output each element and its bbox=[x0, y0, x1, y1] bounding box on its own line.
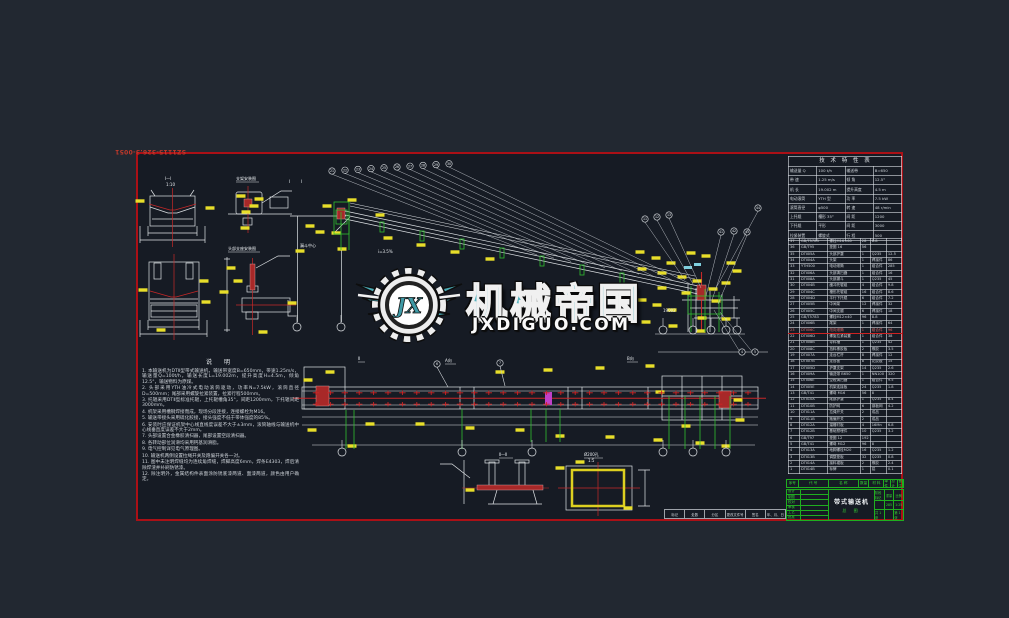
revision-cell: 更改文件号 bbox=[726, 510, 746, 518]
note-line: 4. 机架采用槽钢焊接而成，现场分段连接，连接螺栓为M16。 bbox=[142, 410, 299, 415]
bom-header-row: 序号代 号名 称数量材 料单件总计备注 bbox=[786, 479, 904, 488]
tech-row: 机 长19.002 m提升高度4.5 m bbox=[789, 185, 902, 194]
note-line: 11. 图中未注明焊缝均为连续角焊缝，焊脚高度6mm，焊条E4303，焊后清除焊… bbox=[142, 460, 299, 471]
note-line: 9. 电气控制详见电气原理图。 bbox=[142, 447, 299, 452]
signature-row: 批准 bbox=[787, 516, 828, 520]
tech-row: 电动滚筒YTH 型功 率7.5 kW bbox=[789, 194, 902, 203]
bom-row: 1DTⅡ14B标牌1铝0.1 bbox=[789, 467, 902, 473]
title-info-row: 共 1 张第 1 张 bbox=[875, 510, 903, 520]
note-line: 3. 托辊采用DTⅡ型标准托辊，上托辊槽角35°，间距1200mm，下托辊间距3… bbox=[142, 398, 299, 409]
bom-header-cell: 材 料 bbox=[869, 480, 884, 487]
bom-header-cell: 序号 bbox=[787, 480, 799, 487]
tech-row: 下托辊平形间 距3000 bbox=[789, 222, 902, 231]
cad-canvas: 21222324252627282930111213414243444567Ⅰ—… bbox=[0, 0, 1009, 618]
notes-lines: 1. 本输送机为DTⅡ型带式输送机，输送带宽度B=650mm，带速1.25m/s… bbox=[142, 369, 299, 483]
title-info-row: 阶段标记重量比例 bbox=[875, 490, 903, 501]
title-block-center: 带式输送机 总 图 bbox=[829, 490, 875, 520]
tech-row: 输送量 Q100 t/h输送带B=650 bbox=[789, 167, 902, 176]
note-line: 2. 头部采用YTH油冷式电动滚筒驱动，功率N=7.5kW，滚筒直径D=500m… bbox=[142, 386, 299, 397]
parts-list-table: 37GB/T5783螺栓M16×60288.836GB/T95垫圈 165635… bbox=[788, 238, 902, 474]
bom-header-cell: 备注 bbox=[898, 480, 903, 487]
revision-cell: 分区 bbox=[705, 510, 725, 518]
drawing-number: SZ1115-326.3-0051 bbox=[130, 148, 186, 155]
title-info-row: 2851:25 bbox=[875, 501, 903, 510]
tech-row: 带 速1.25 m/s倾 角12.5° bbox=[789, 176, 902, 185]
title-block-signatures: 设计制图校对审核工艺批准 bbox=[787, 490, 829, 520]
notes-title: 说 明 bbox=[142, 357, 299, 366]
revision-strip: 标记处数分区更改文件号签名年、月、日 bbox=[664, 509, 786, 519]
bom-header-cell: 总计 bbox=[891, 480, 898, 487]
drawing-subtitle: 总 图 bbox=[842, 508, 860, 514]
note-line: 5. 输送带接头采用硫化胶接，接头强度不低于带体强度的85%。 bbox=[142, 416, 299, 421]
revision-cell: 签名 bbox=[746, 510, 766, 518]
title-block: 设计制图校对审核工艺批准 带式输送机 总 图 阶段标记重量比例2851:25共 … bbox=[786, 489, 904, 521]
note-line: 7. 头部设置合金橡胶清扫器，尾部设置空段清扫器。 bbox=[142, 434, 299, 439]
revision-cell: 年、月、日 bbox=[766, 510, 785, 518]
tech-table-title: 技 术 特 性 表 bbox=[789, 157, 902, 167]
notes-block: 说 明 1. 本输送机为DTⅡ型带式输送机，输送带宽度B=650mm，带速1.2… bbox=[142, 357, 299, 484]
tech-row: 滚筒直径φ500转 速48 r/min bbox=[789, 203, 902, 212]
note-line: 8. 各转动部位润滑均采用钙基润滑脂。 bbox=[142, 441, 299, 446]
tech-spec-table: 技 术 特 性 表 输送量 Q100 t/h输送带B=650带 速1.25 m/… bbox=[788, 156, 902, 241]
title-block-info: 阶段标记重量比例2851:25共 1 张第 1 张 bbox=[875, 490, 903, 520]
tech-row: 上托辊槽形 35°间 距1200 bbox=[789, 212, 902, 221]
drawing-title: 带式输送机 bbox=[834, 497, 869, 506]
note-line: 10. 输送机两侧设置拉绳开关及跑偏开关各一对。 bbox=[142, 454, 299, 459]
revision-cell: 处数 bbox=[685, 510, 705, 518]
bom-header-cell: 名 称 bbox=[829, 480, 859, 487]
bom-header-cell: 代 号 bbox=[799, 480, 829, 487]
revision-cell: 标记 bbox=[665, 510, 685, 518]
note-line: 12. 除注明外，金属结构件表面涂防锈底漆两道、面漆两道，颜色由用户确定。 bbox=[142, 472, 299, 483]
bom-header-cell: 数量 bbox=[859, 480, 869, 487]
note-line: 6. 安装时应保证机架中心线直线度误差不大于±3mm，滚筒轴线与输送机中心线垂直… bbox=[142, 423, 299, 434]
note-line: 1. 本输送机为DTⅡ型带式输送机，输送带宽度B=650mm，带速1.25m/s… bbox=[142, 369, 299, 385]
bom-header-cell: 单件 bbox=[884, 480, 891, 487]
